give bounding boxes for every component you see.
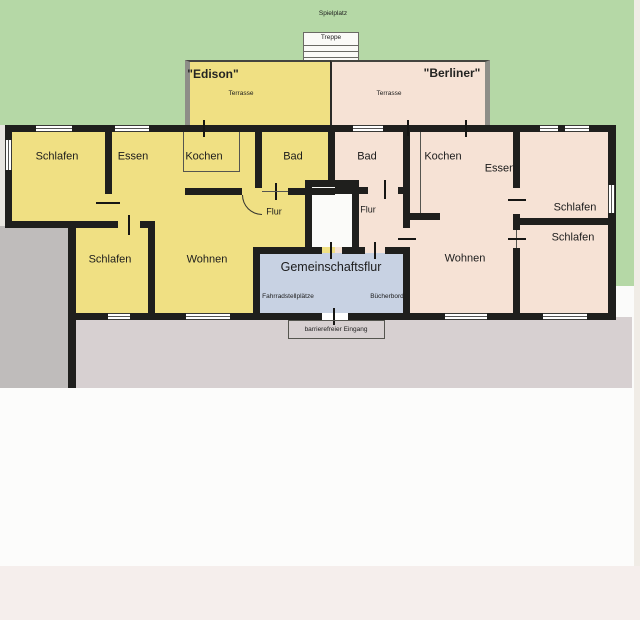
bottom-pink-strip [0,566,640,620]
scan-edge-right [634,0,640,620]
door-tick-berliner-bad [384,180,386,199]
playground-label: Spielplatz [319,11,347,18]
window-right-schlafen [608,185,615,213]
stair-step-line [304,51,358,52]
room-label-berliner-bad: Bad [357,152,377,163]
wall-edison-kochen-bad [255,132,262,188]
window-bottom-wohnen-e [186,313,230,320]
window-top-schlafen [36,125,72,132]
stairs-label: Treppe [321,35,341,42]
wall-berliner-kochen-stub [403,213,440,220]
wall-berliner-schlafen-divider [513,218,608,225]
window-top-berliner-essen [540,125,558,132]
wall-edison-schlafen-essen [105,132,112,194]
wall-berliner-corridor-lower [403,250,410,320]
wall-hall-top-mid [342,247,365,254]
window-tick-berliner-top [407,120,409,136]
room-label-berliner-flur: Flur [360,206,376,215]
room-label-edison-essen: Essen [118,152,149,163]
window-bottom-wohnen-b [445,313,487,320]
berliner-terrace-label: Terrasse [377,91,402,98]
opening-line-edison-bad [262,191,288,192]
room-label-berliner-schlafen2: Schlafen [552,233,595,244]
floor-plan: Spielplatz Treppe "Edison" Terrasse "Ber… [0,0,640,620]
wall-berliner-essen-schlafen-c [513,248,520,313]
wall-edison-kochen-bottom [185,188,242,195]
window-top-berliner-bad [353,125,383,132]
wall-berliner-essen-schlafen-a [513,128,520,188]
wall-vestibule-top [305,180,359,187]
vestibule-floor [312,187,352,247]
window-top-essen [115,125,149,132]
kitchen-counter-berliner [420,132,421,213]
room-label-edison-schlafen1: Schlafen [36,152,79,163]
room-label-shared-hall: Gemeinschaftsflur [281,261,382,274]
wall-left-lower-h [5,221,118,228]
window-top-berliner-schlafen [565,125,589,132]
lawn-right-strip [614,130,634,286]
room-label-edison-wohnen: Wohnen [187,255,228,266]
window-bottom-schlafen-br [543,313,587,320]
berliner-apartment-name: "Berliner" [424,67,481,79]
label-bike-parking: Fahrradstellplätze [262,294,314,301]
room-label-berliner-essen: Essen [485,164,516,175]
wall-yard-vertical [68,221,76,388]
door-tick-berliner-terrace [465,120,467,137]
wall-outer-top [5,125,616,132]
edison-terrace-label: Terrasse [229,91,254,98]
room-label-berliner-kochen: Kochen [424,152,461,163]
door-tick-berliner-schlafen1 [508,199,526,201]
room-label-edison-flur: Flur [266,208,282,217]
edison-apartment-name: "Edison" [187,68,238,80]
room-label-edison-kochen: Kochen [185,152,222,163]
wall-apartment-divider [328,125,335,187]
door-tick-edison-schlafen2 [128,215,130,235]
room-label-edison-schlafen2: Schlafen [89,255,132,266]
stair-step-line [304,57,358,58]
wall-berliner-bad-bottom-l [335,187,368,194]
barrier-free-entrance-label: barrierefreier Eingang [305,327,368,334]
window-bottom-schlafen2 [108,313,130,320]
wall-hall-top-left [253,247,322,254]
room-label-edison-bad: Bad [283,152,303,163]
wall-berliner-bad-bottom-r [398,187,410,194]
wall-edison-schlafen2-wohnen [148,221,155,313]
entrance-door-gap [322,313,348,320]
stair-step-line [304,45,358,46]
window-left-schlafen [5,140,12,170]
wall-hall-left [253,247,260,320]
door-tick-berliner-wohnen [398,238,416,240]
door-tick-berliner-flur [374,242,376,259]
room-label-berliner-schlafen1: Schlafen [554,203,597,214]
wall-vestibule-left [305,187,312,253]
blank-paper-band [0,388,634,566]
window-tick-berliner-schlafen2 [508,238,526,240]
room-label-berliner-wohnen: Wohnen [445,254,486,265]
door-tick-edison-schlafen1 [96,202,120,204]
label-bookshelf: Bücherbord [370,294,404,301]
door-tick-vestibule [330,242,332,259]
wall-outer-right [608,125,616,320]
pavement-grey-area [0,226,68,388]
